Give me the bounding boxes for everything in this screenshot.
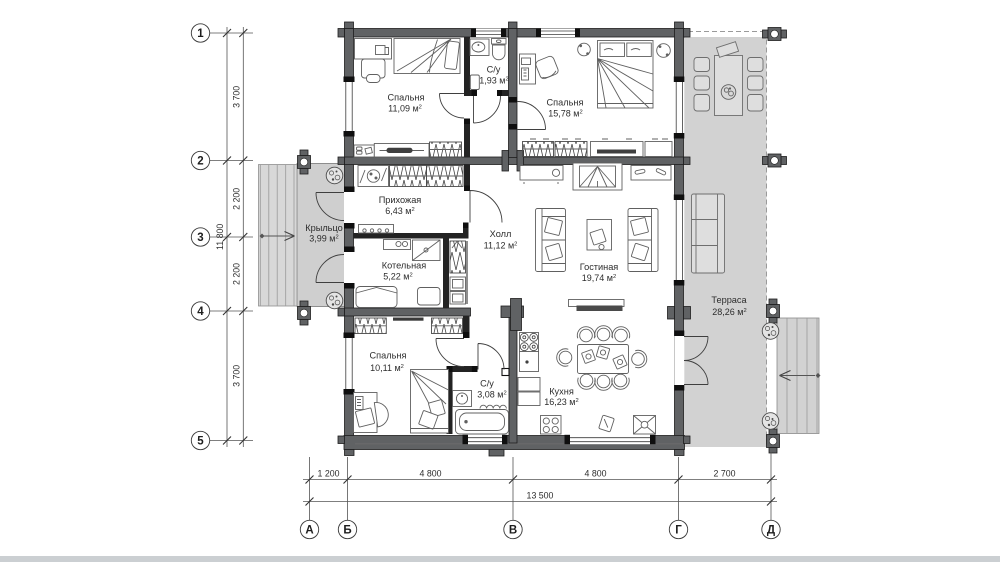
svg-text:2 200: 2 200	[232, 263, 242, 285]
svg-text:Спальня: Спальня	[547, 98, 584, 108]
svg-text:В: В	[509, 525, 517, 537]
svg-text:Спальня: Спальня	[370, 351, 407, 361]
svg-text:4 800: 4 800	[584, 469, 606, 479]
svg-text:16,23 м2: 16,23 м2	[544, 397, 578, 407]
svg-text:5,22 м2: 5,22 м2	[383, 272, 412, 282]
svg-text:10,11 м2: 10,11 м2	[370, 363, 404, 373]
svg-text:С/у: С/у	[480, 379, 494, 389]
svg-text:13 500: 13 500	[527, 491, 554, 501]
svg-text:2 200: 2 200	[232, 188, 242, 210]
svg-text:Прихожая: Прихожая	[379, 195, 422, 205]
svg-text:1,93 м2: 1,93 м2	[479, 76, 508, 86]
svg-text:Терраса: Терраса	[711, 295, 747, 305]
svg-text:4 800: 4 800	[419, 469, 441, 479]
svg-text:2 700: 2 700	[713, 469, 735, 479]
svg-text:11 800: 11 800	[215, 224, 225, 250]
svg-text:Котельная: Котельная	[382, 261, 426, 271]
svg-text:11,12 м2: 11,12 м2	[484, 241, 518, 251]
svg-text:5: 5	[197, 436, 204, 448]
svg-text:С/у: С/у	[487, 65, 501, 75]
svg-text:6,43 м2: 6,43 м2	[385, 206, 414, 216]
svg-text:Крыльцо: Крыльцо	[305, 223, 342, 233]
svg-text:Г: Г	[675, 525, 682, 537]
svg-text:19,74 м2: 19,74 м2	[582, 273, 616, 283]
svg-text:Холл: Холл	[490, 229, 512, 239]
svg-text:4: 4	[197, 306, 204, 318]
svg-text:Кухня: Кухня	[549, 387, 574, 397]
svg-text:11,09 м2: 11,09 м2	[388, 104, 422, 114]
svg-text:Спальня: Спальня	[388, 93, 425, 103]
svg-text:28,26 м2: 28,26 м2	[712, 307, 746, 317]
svg-text:Гостиная: Гостиная	[580, 262, 619, 272]
svg-text:1: 1	[197, 28, 204, 40]
svg-text:15,78 м2: 15,78 м2	[548, 109, 582, 119]
svg-text:2: 2	[197, 156, 203, 168]
svg-text:3,99 м2: 3,99 м2	[309, 234, 338, 244]
svg-text:Б: Б	[343, 525, 351, 537]
svg-text:Д: Д	[767, 525, 775, 537]
svg-text:А: А	[305, 525, 313, 537]
svg-text:3 700: 3 700	[232, 365, 242, 387]
svg-text:1 200: 1 200	[317, 469, 339, 479]
svg-text:3: 3	[197, 232, 203, 244]
svg-text:3 700: 3 700	[232, 86, 242, 108]
svg-text:3,08 м2: 3,08 м2	[477, 390, 506, 400]
